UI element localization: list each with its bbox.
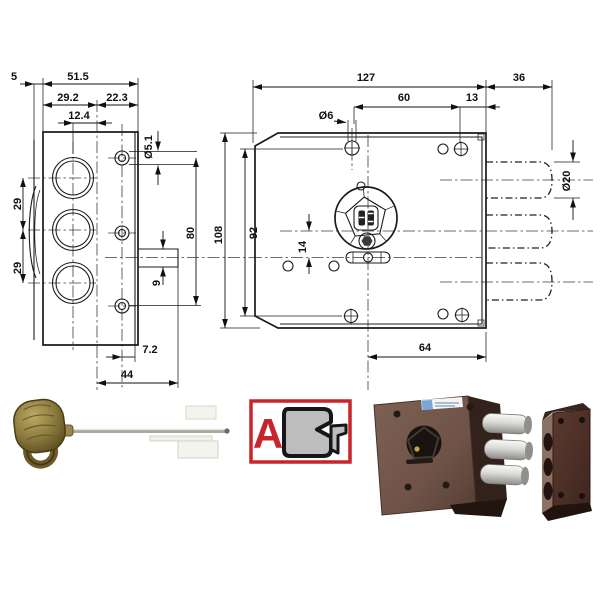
dim-12-4: 12.4 [68,110,90,122]
dim-127: 127 [357,72,375,84]
dim-dia5-1: Ø5.1 [143,135,155,159]
key-tip [224,428,229,433]
strike-screw-3 [558,492,564,498]
corner-mark-bottom [478,320,484,326]
dim-22-3: 22.3 [106,92,127,104]
dim-dia6: Ø6 [319,110,334,122]
key-bit-ghost-1 [150,436,212,441]
dim-92: 92 [248,227,260,239]
dim-64: 64 [419,342,432,354]
strike-screw-4 [579,493,585,499]
dim-51-5: 51.5 [67,71,88,83]
front-view-drawing: 127 36 60 13 Ø6 108 92 14 Ø20 64 [213,72,593,390]
strike-hole-2 [544,458,553,476]
dim-29-top: 29 [12,198,24,210]
dim-29-bottom: 29 [12,262,24,274]
dim-108: 108 [213,226,225,244]
door-profile-shape [284,409,331,456]
keyhole-step [138,249,178,267]
strike-screw-1 [558,418,564,424]
cylinder-guard-bulge-inner [35,190,40,274]
screw-hole-bottom-b [438,309,448,319]
bolt-1 [482,413,529,434]
dim-7-2: 7.2 [142,344,157,356]
strike-screw-2 [579,417,585,423]
deadbolt-3-phantom [486,263,552,300]
mount-type-letter: A [253,410,283,457]
lock-knob-pin [414,446,419,451]
lock-product-photo [374,396,533,517]
bolt-2 [484,439,530,460]
technical-drawing-sheet: 5 51.5 29.2 22.3 12.4 Ø5.1 29 29 80 9 [0,0,600,600]
lock-bolts [480,413,533,485]
screw-cross [344,309,359,324]
lock-screw-hole-4 [443,482,450,489]
catalog-image: 5 51.5 29.2 22.3 12.4 Ø5.1 29 29 80 9 [0,0,600,600]
dim-5: 5 [11,71,17,83]
dim-13: 13 [466,92,478,104]
leader-dia6 [334,121,346,123]
knob-screw-hex [362,236,373,246]
strike-hole-3 [544,482,553,500]
ext-line [354,107,460,143]
dim-36: 36 [513,72,525,84]
strike-front-face [553,409,590,506]
thumb-turn-knob-drawing [335,182,397,249]
logo-glyph-2 [368,211,375,226]
knob-logo-plate [354,206,378,230]
dim-80: 80 [185,227,197,239]
deadbolt-2-phantom [486,215,552,248]
dim-14: 14 [297,240,309,253]
screw-hole-mid-b [329,261,339,271]
key-bit-ghost-2 [178,441,218,458]
key-bit-ghost-3 [186,406,216,419]
dim-9: 9 [151,280,163,286]
key-photo [12,397,230,467]
key-head [12,397,69,467]
lock-screw-hole-1 [394,411,401,418]
dim-29-2: 29.2 [57,92,78,104]
lock-label-logo-area [422,400,434,410]
screw-hole-mid-a [283,261,293,271]
screw-cross [455,308,470,323]
ext-line [129,152,197,165]
strike-hole-1 [544,433,553,451]
bolt-3 [480,464,526,485]
mount-type-icon: A [251,401,350,462]
screw-hole-top-a [438,144,448,154]
strike-box-photo [542,403,592,521]
dim-dia20: Ø20 [561,171,573,192]
dim-60: 60 [398,92,410,104]
screw-cross [454,142,469,157]
lock-screw-hole-3 [405,484,412,491]
lock-screw-hole-2 [467,404,474,411]
dim-44: 44 [121,369,134,381]
